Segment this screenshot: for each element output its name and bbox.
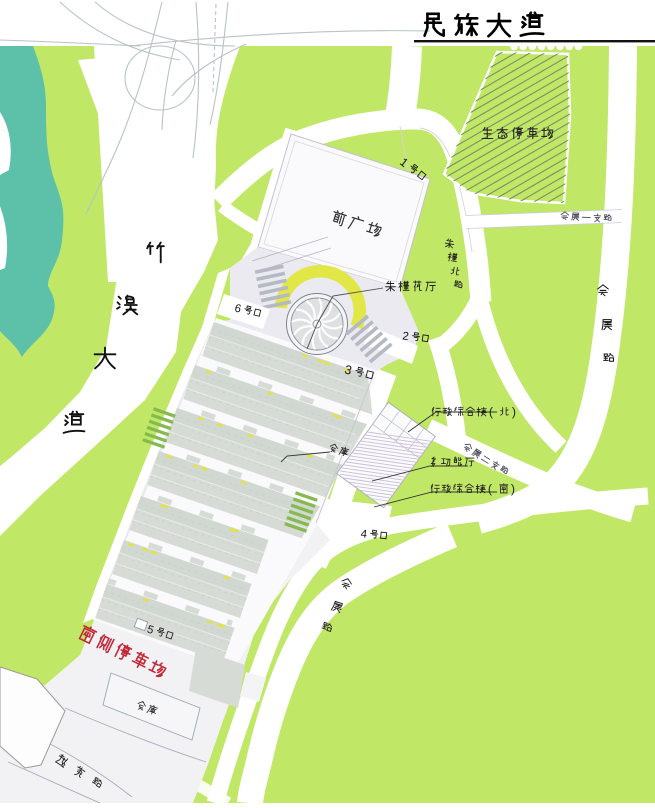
svg-text:4: 4 xyxy=(360,528,368,541)
svg-text:): ) xyxy=(511,482,515,496)
svg-text:): ) xyxy=(512,405,516,419)
